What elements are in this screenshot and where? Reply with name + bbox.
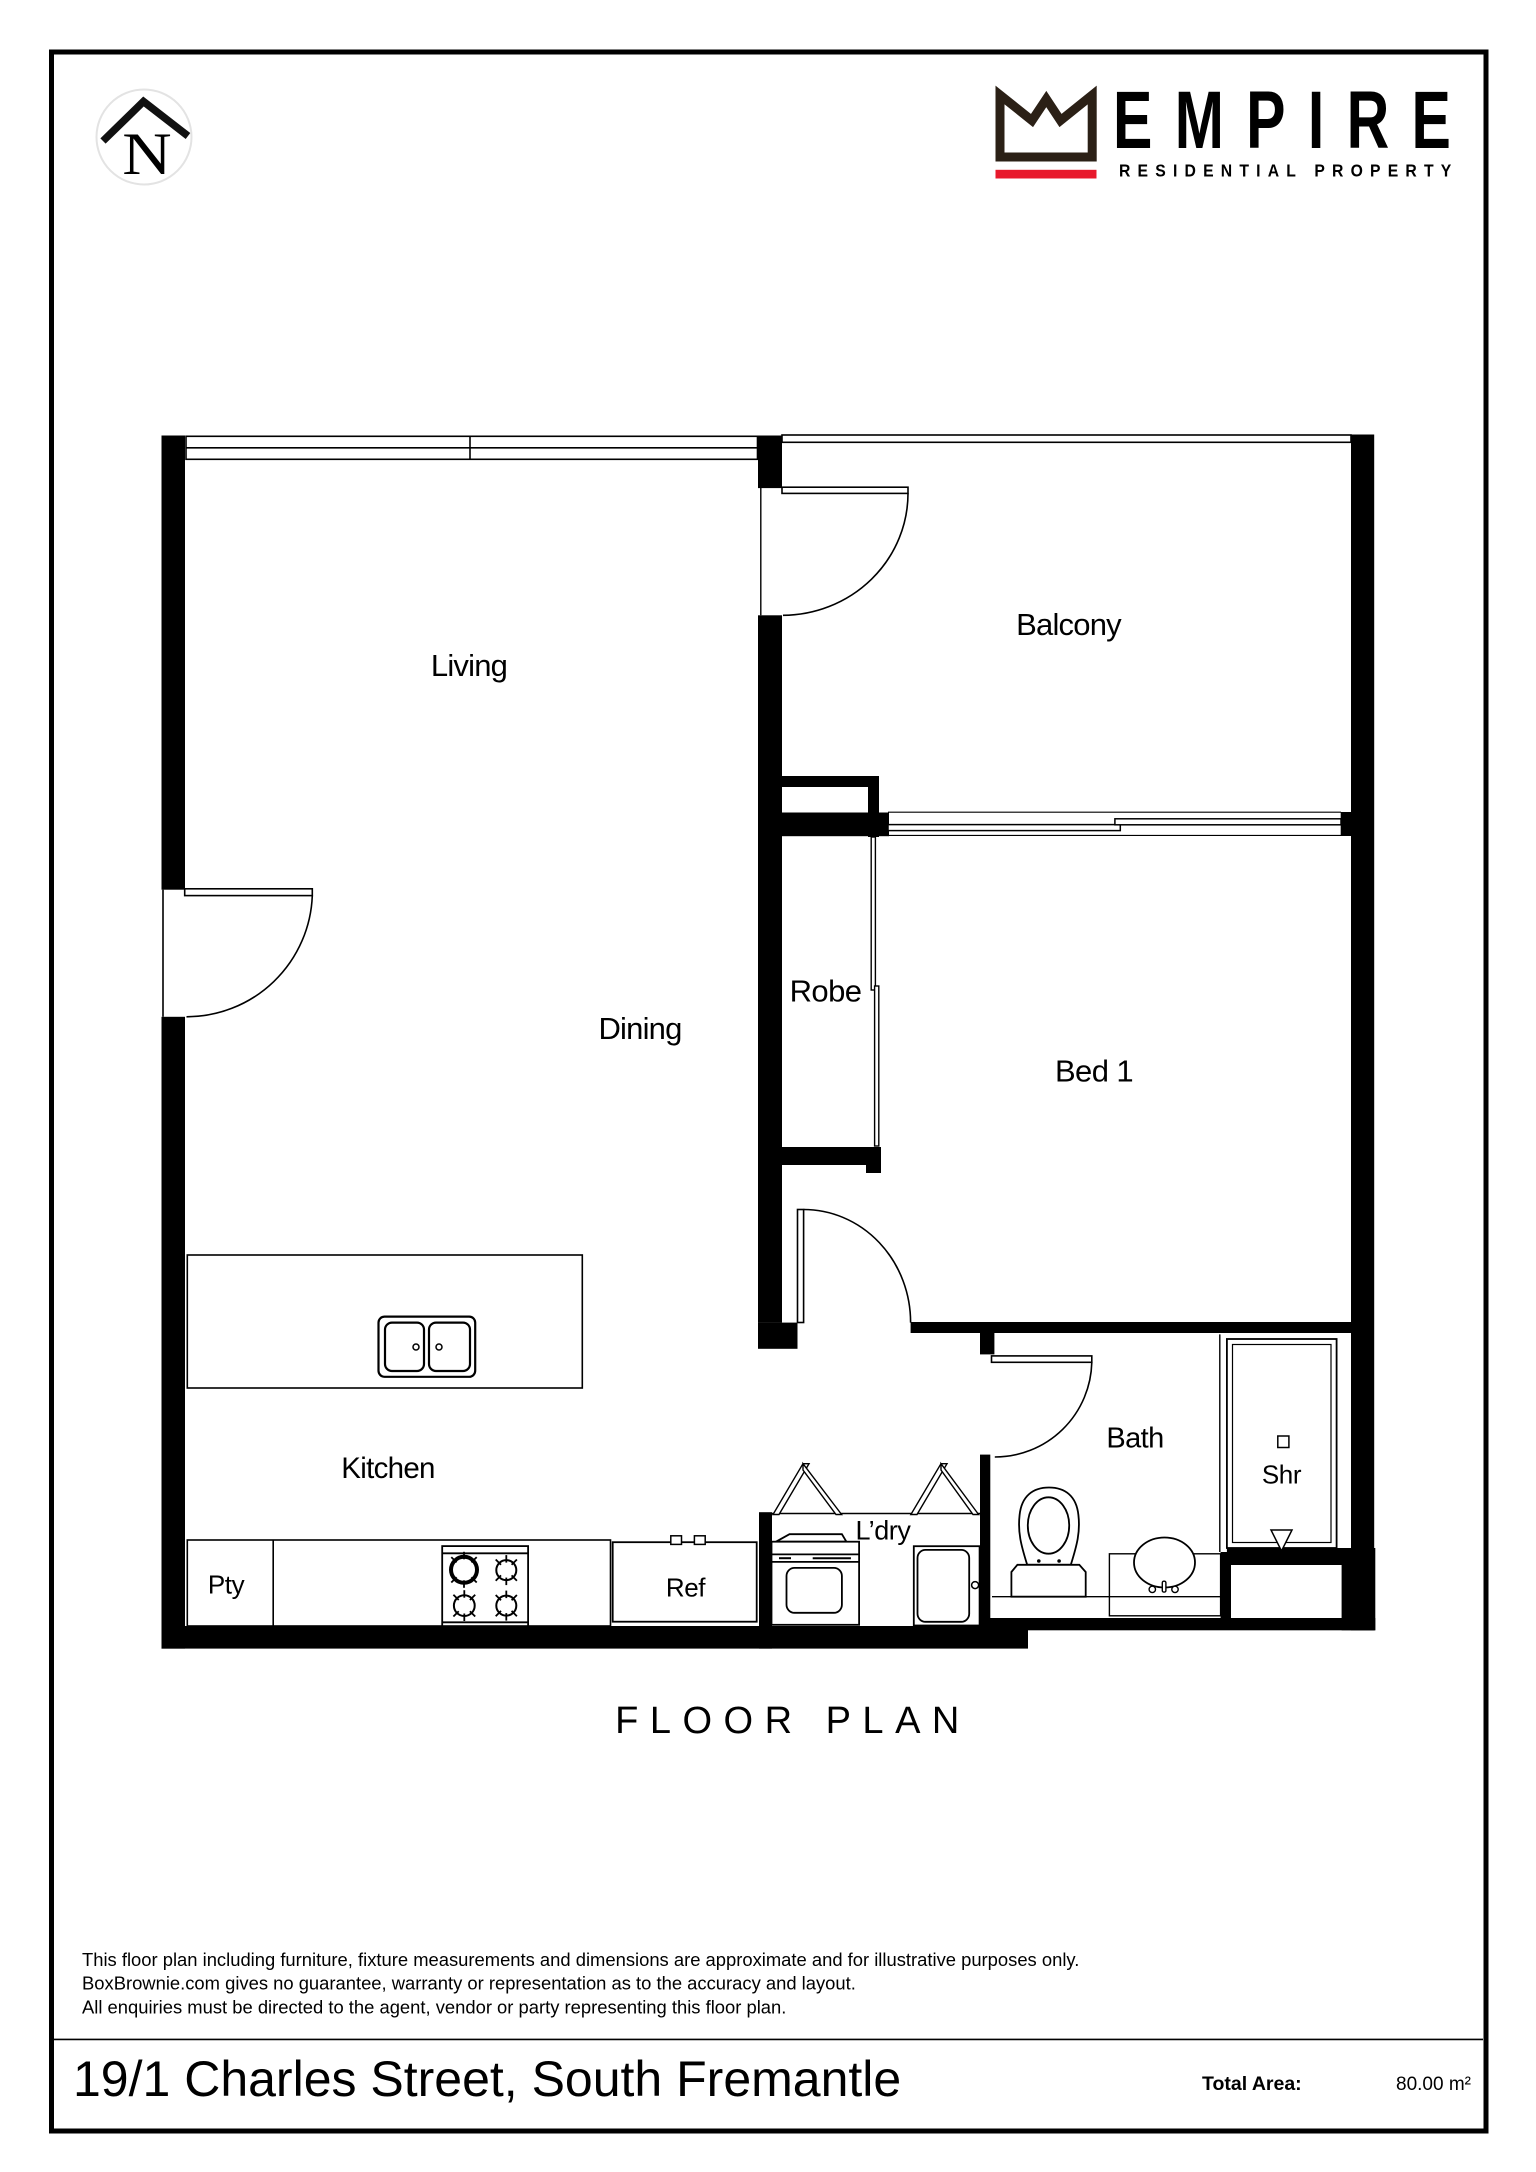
svg-text:All enquiries must be directed: All enquiries must be directed to the ag… [82,1997,786,2018]
svg-text:Bath: Bath [1106,1423,1163,1455]
svg-text:19/1 Charles Street, South Fre: 19/1 Charles Street, South Fremantle [73,2051,901,2107]
svg-text:Kitchen: Kitchen [341,1452,435,1485]
svg-text:Robe: Robe [790,974,862,1009]
svg-text:Shr: Shr [1262,1460,1302,1490]
svg-text:Ref: Ref [666,1573,706,1603]
svg-text:RESIDENTIAL PROPERTY: RESIDENTIAL PROPERTY [1119,161,1458,181]
svg-text:L’dry: L’dry [855,1516,911,1546]
svg-text:Pty: Pty [208,1570,245,1600]
svg-text:Balcony: Balcony [1016,607,1122,642]
svg-text:Bed 1: Bed 1 [1055,1054,1133,1089]
svg-text:This floor plan including furn: This floor plan including furniture, fix… [82,1949,1079,1970]
svg-text:Total Area:: Total Area: [1202,2073,1302,2095]
svg-text:FLOOR PLAN: FLOOR PLAN [615,1700,971,1742]
svg-text:EMPIRE: EMPIRE [1113,75,1473,167]
svg-text:80.00 m²: 80.00 m² [1396,2074,1471,2095]
svg-text:BoxBrownie.com gives no guaran: BoxBrownie.com gives no guarantee, warra… [82,1973,856,1994]
svg-text:Living: Living [431,648,507,683]
svg-text:N: N [122,121,171,187]
svg-text:Dining: Dining [598,1011,681,1046]
